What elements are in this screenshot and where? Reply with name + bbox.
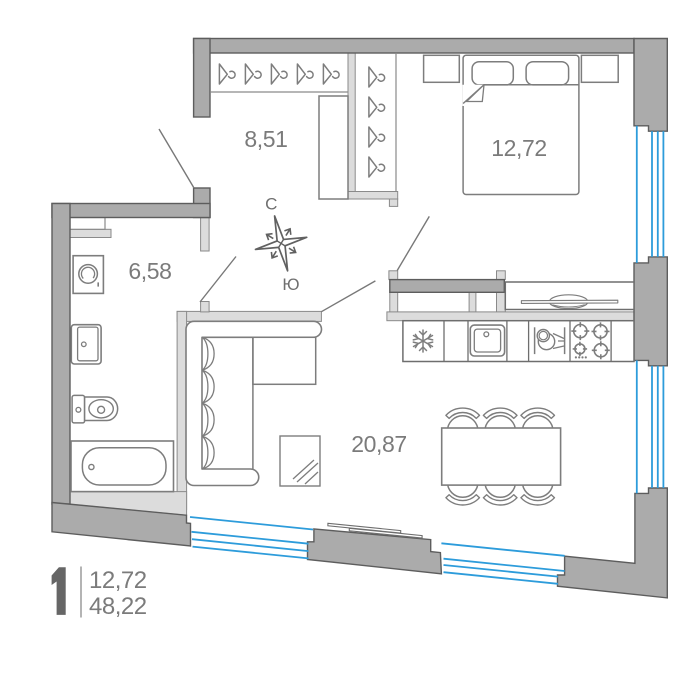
svg-text:Ю: Ю (282, 275, 299, 294)
svg-text:20,87: 20,87 (351, 431, 407, 457)
svg-text:48,22: 48,22 (89, 593, 147, 620)
svg-text:8,51: 8,51 (244, 126, 287, 152)
svg-text:6,58: 6,58 (128, 258, 171, 284)
svg-text:12,72: 12,72 (89, 567, 147, 594)
svg-text:12,72: 12,72 (491, 135, 547, 161)
svg-text:С: С (265, 195, 277, 214)
